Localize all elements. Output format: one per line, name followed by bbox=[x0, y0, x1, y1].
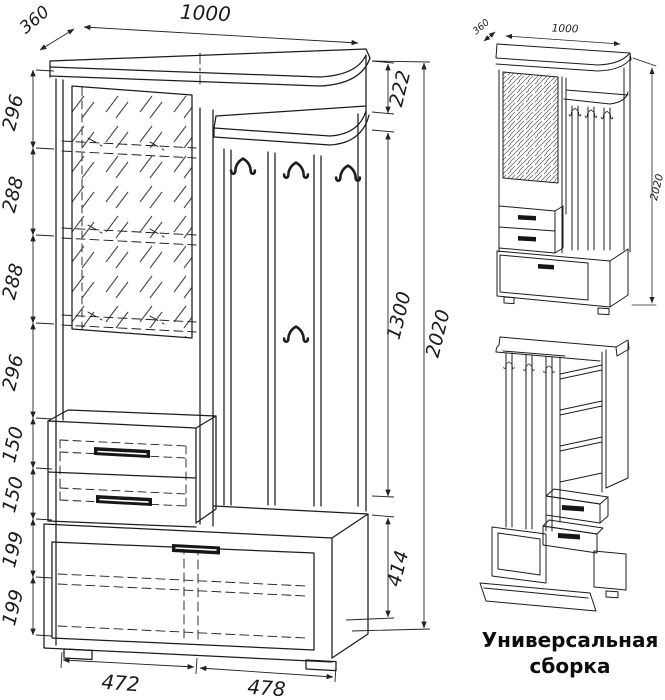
center-divider bbox=[200, 108, 213, 526]
coat-hook-icon bbox=[544, 366, 555, 373]
dim-total-height: 2020 bbox=[422, 307, 455, 359]
smb-open-shelves bbox=[560, 352, 602, 522]
coat-hook-icon bbox=[601, 111, 613, 118]
main-furniture-drawing: 1000 360 296 288 288 296 150 150 199 199… bbox=[0, 0, 470, 700]
sm-hooks bbox=[569, 108, 613, 118]
dim-left-0: 296 bbox=[0, 92, 28, 133]
assembly-view-reversed bbox=[480, 337, 629, 611]
dim-left-3: 296 bbox=[0, 352, 28, 393]
coat-hooks bbox=[231, 159, 360, 342]
coat-hook-icon bbox=[336, 166, 360, 181]
dim-bottom-right: 478 bbox=[247, 675, 287, 700]
smb-open-drawers bbox=[543, 489, 608, 553]
coat-hook-icon bbox=[284, 327, 308, 342]
smb-right-panel bbox=[606, 342, 628, 488]
sm-mirror bbox=[503, 72, 558, 183]
cabinet-door-handle bbox=[172, 544, 220, 555]
coat-hook-icon bbox=[569, 108, 581, 115]
sm-dim-depth: 360 bbox=[471, 17, 492, 37]
dim-top-depth: 360 bbox=[16, 2, 54, 38]
dimension-labels: 1000 360 296 288 288 296 150 150 199 199… bbox=[0, 0, 455, 700]
smb-hooks bbox=[504, 362, 555, 373]
bottom-cabinet bbox=[44, 506, 368, 662]
sm-cabinet bbox=[497, 249, 628, 315]
dim-left-4: 150 bbox=[0, 424, 28, 465]
smb-hook-strips bbox=[506, 353, 552, 531]
assembly-caption-line2: сборка bbox=[530, 654, 611, 678]
dim-right-shelf: 222 bbox=[385, 68, 415, 109]
smb-base bbox=[594, 551, 626, 598]
sm-dim-height: 2020 bbox=[648, 173, 665, 202]
assembly-views: 360 1000 2020 Универсальная сборка bbox=[470, 0, 665, 700]
coat-hook-icon bbox=[504, 362, 515, 369]
dim-bottom-left: 472 bbox=[101, 670, 141, 697]
dim-left-1: 288 bbox=[0, 174, 28, 215]
coat-hook-icon bbox=[284, 163, 308, 178]
drawer-handles bbox=[94, 447, 152, 506]
smb-open-flap bbox=[480, 583, 596, 611]
dim-left-5: 150 bbox=[0, 474, 28, 515]
sm-dim-width: 1000 bbox=[552, 23, 579, 36]
assembly-labels: 360 1000 2020 Универсальная сборка bbox=[471, 17, 665, 678]
canopy-top-board bbox=[50, 49, 370, 86]
hook-section-shelf bbox=[214, 106, 369, 145]
sm-drawer-unit bbox=[499, 206, 563, 253]
dim-left-2: 288 bbox=[0, 261, 28, 302]
technical-drawing-page: 1000 360 296 288 288 296 150 150 199 199… bbox=[0, 0, 665, 700]
dim-left-6: 199 bbox=[0, 529, 28, 570]
smb-lower-compartment bbox=[492, 527, 546, 583]
dim-top-width: 1000 bbox=[179, 0, 231, 26]
coat-hook-icon bbox=[585, 110, 597, 117]
dim-left-7: 199 bbox=[0, 587, 28, 628]
smb-cornice bbox=[496, 337, 629, 361]
mirror-panel bbox=[72, 86, 192, 338]
assembly-caption-line1: Универсальная bbox=[482, 628, 659, 652]
drawer-unit bbox=[48, 410, 216, 527]
coat-hook-icon bbox=[231, 159, 255, 174]
hook-panel-slats bbox=[224, 149, 321, 506]
coat-hook-icon bbox=[524, 364, 535, 371]
assembly-view-front bbox=[484, 32, 656, 315]
sm-canopy bbox=[496, 44, 631, 71]
